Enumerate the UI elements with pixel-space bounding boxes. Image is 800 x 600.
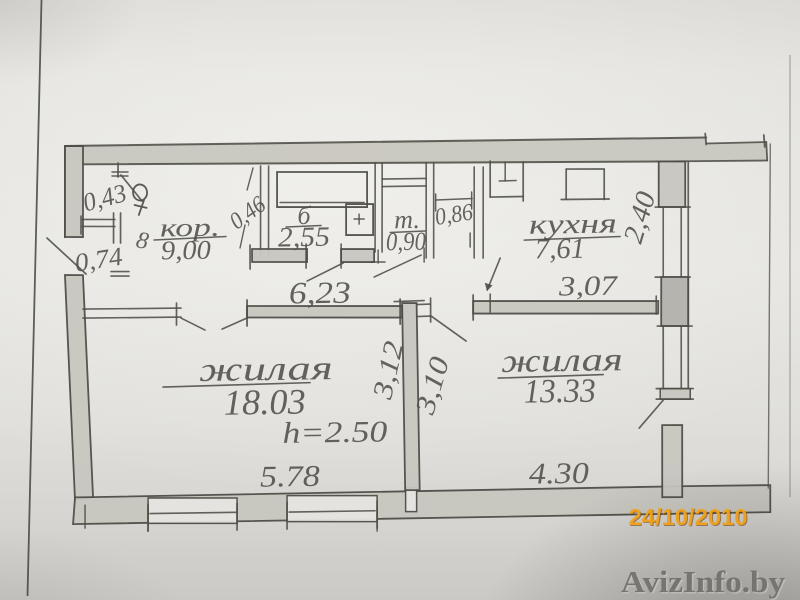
svg-text:24/10/2010: 24/10/2010 bbox=[629, 504, 748, 530]
svg-text:AvizInfo.by: AvizInfo.by bbox=[621, 564, 786, 599]
